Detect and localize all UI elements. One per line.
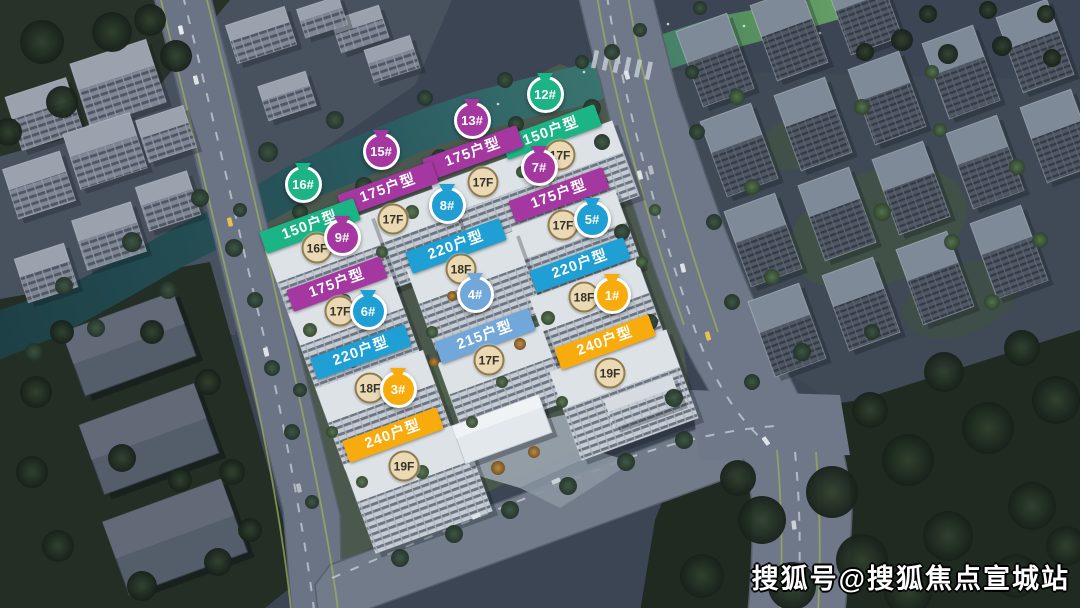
screenshot: 150户型17F12#175户型17F13#175户型17F15#150户型16… [0,0,1080,608]
aerial-rendering [0,0,1080,608]
watermark: 搜狐号@搜狐焦点宣城站 [752,557,1070,596]
